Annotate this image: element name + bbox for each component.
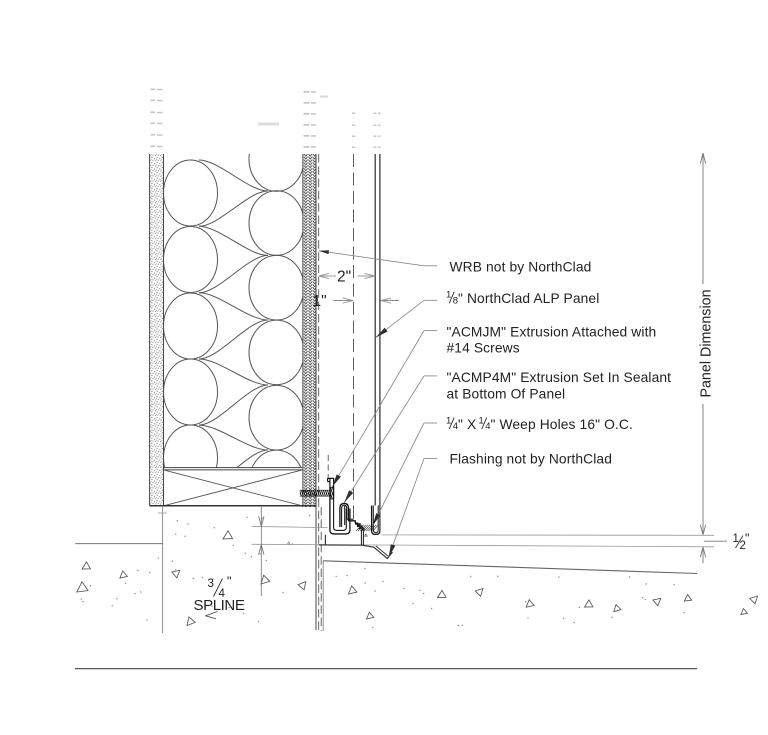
svg-text:1": 1" — [313, 293, 327, 310]
svg-text:"ACMJM" Extrusion Attached wit: "ACMJM" Extrusion Attached with — [447, 325, 657, 340]
svg-text:Flashing not by NorthClad: Flashing not by NorthClad — [450, 451, 613, 466]
svg-text:2": 2" — [337, 269, 351, 286]
svg-text:": " — [227, 575, 231, 589]
svg-text:#14 Screws: #14 Screws — [447, 341, 520, 356]
svg-text:3: 3 — [208, 578, 214, 590]
svg-text:": " — [745, 532, 749, 546]
svg-text:" NorthClad ALP Panel: " NorthClad ALP Panel — [458, 291, 599, 306]
svg-text:Panel Dimension: Panel Dimension — [698, 289, 714, 397]
svg-text:SPLINE: SPLINE — [194, 597, 245, 614]
svg-text:1: 1 — [446, 415, 451, 426]
svg-text:WRB not by NorthClad: WRB not by NorthClad — [450, 260, 592, 275]
svg-text:1: 1 — [446, 290, 451, 301]
svg-text:1: 1 — [479, 415, 484, 426]
svg-text:at Bottom Of Panel: at Bottom Of Panel — [447, 386, 566, 401]
svg-text:" Weep Holes 16" O.C.: " Weep Holes 16" O.C. — [491, 417, 633, 432]
svg-text:" X: " X — [458, 417, 476, 432]
svg-text:"ACMP4M" Extrusion Set In Seal: "ACMP4M" Extrusion Set In Sealant — [447, 370, 672, 385]
